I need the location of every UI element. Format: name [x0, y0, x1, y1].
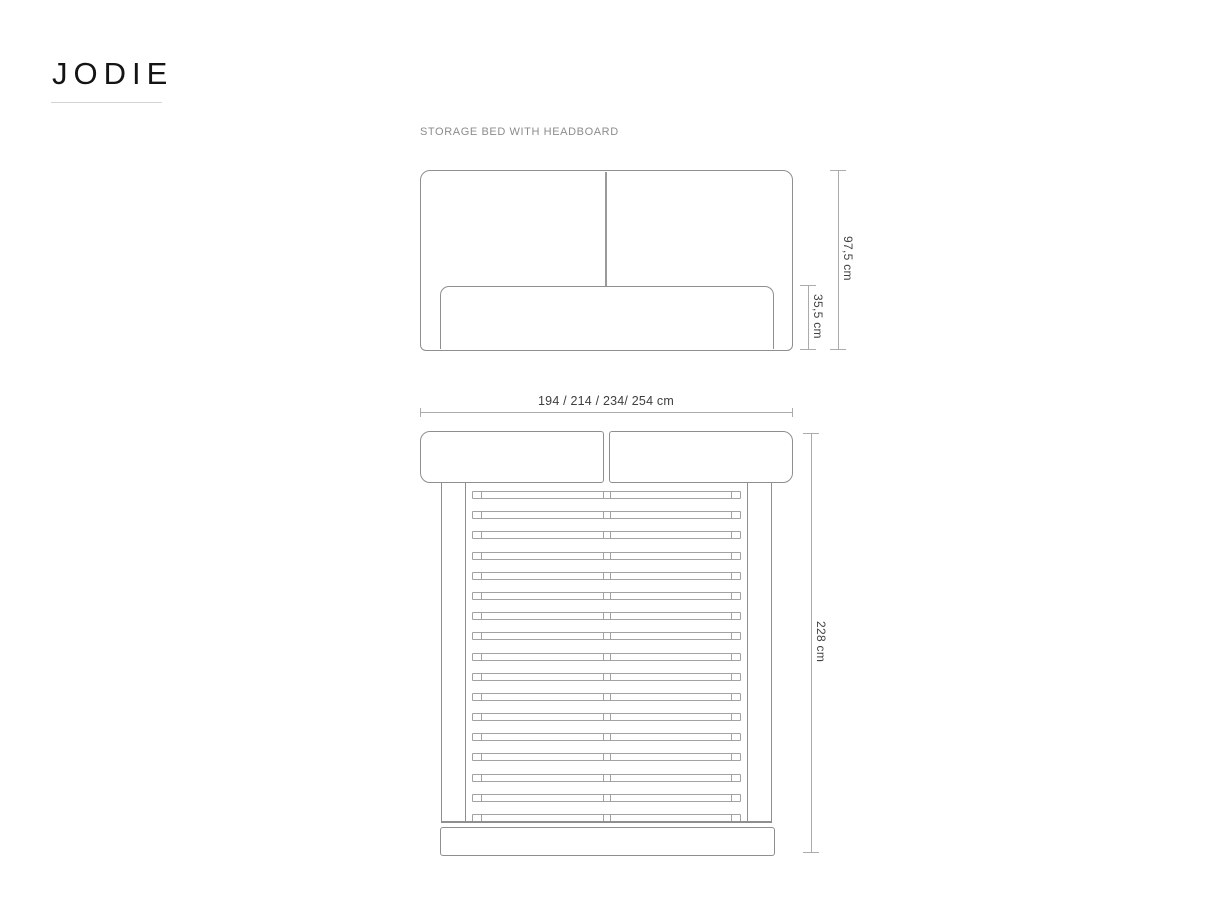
slat-end-cap	[603, 593, 604, 599]
slat-end-cap	[610, 714, 611, 720]
brand-logo: JODIE	[52, 56, 173, 92]
platform-bottom-edge	[441, 821, 772, 823]
bed-slat	[472, 673, 741, 681]
slat-end-cap	[481, 654, 482, 660]
bed-slat	[472, 774, 741, 782]
slat-end-cap	[731, 532, 732, 538]
bed-slat	[472, 753, 741, 761]
slat-end-cap	[481, 714, 482, 720]
slat-end-cap	[603, 734, 604, 740]
slat-end-cap	[610, 734, 611, 740]
slat-end-cap	[603, 654, 604, 660]
dim-line	[838, 171, 839, 350]
slat-end-cap	[481, 674, 482, 680]
slat-end-cap	[610, 654, 611, 660]
dim-tick-top	[803, 433, 819, 434]
slat-end-cap	[731, 512, 732, 518]
slat-end-cap	[731, 694, 732, 700]
slat-end-cap	[481, 593, 482, 599]
slat-end-cap	[603, 573, 604, 579]
dim-label-total-length: 228 cm	[814, 621, 828, 662]
slat-end-cap	[731, 573, 732, 579]
slat-end-cap	[481, 492, 482, 498]
slat-end-cap	[610, 553, 611, 559]
slat-end-cap	[610, 512, 611, 518]
bed-slat	[472, 491, 741, 499]
slat-end-cap	[610, 532, 611, 538]
slat-end-cap	[610, 775, 611, 781]
slat-end-cap	[481, 795, 482, 801]
bed-slat	[472, 511, 741, 519]
slat-end-cap	[610, 492, 611, 498]
slat-end-cap	[610, 795, 611, 801]
bed-slat	[472, 713, 741, 721]
slat-end-cap	[603, 775, 604, 781]
dim-tick-bottom	[800, 349, 816, 350]
bed-slat	[472, 632, 741, 640]
slat-end-cap	[731, 613, 732, 619]
product-subtitle: STORAGE BED WITH HEADBOARD	[420, 126, 619, 138]
slat-end-cap	[731, 553, 732, 559]
slat-end-cap	[610, 593, 611, 599]
slat-end-cap	[731, 775, 732, 781]
dim-line	[808, 286, 809, 350]
dim-label-width: 194 / 214 / 234/ 254 cm	[538, 394, 674, 408]
side-rail-right	[747, 483, 772, 822]
footboard-outline	[440, 827, 775, 856]
slat-end-cap	[731, 633, 732, 639]
slat-end-cap	[610, 613, 611, 619]
headboard-cushion-right	[609, 431, 793, 483]
bed-slat	[472, 794, 741, 802]
slat-end-cap	[603, 714, 604, 720]
dim-tick-right	[792, 408, 793, 417]
dim-tick-top	[800, 285, 816, 286]
slat-end-cap	[481, 734, 482, 740]
bed-slat	[472, 693, 741, 701]
slat-end-cap	[603, 674, 604, 680]
dim-tick-bottom	[803, 852, 819, 853]
slat-end-cap	[481, 532, 482, 538]
bed-slat	[472, 552, 741, 560]
slat-end-cap	[731, 734, 732, 740]
dim-tick-top	[830, 170, 846, 171]
dim-label-frame-height: 35,5 cm	[811, 294, 825, 339]
spec-sheet-page: JODIE STORAGE BED WITH HEADBOARD 97,5 cm…	[0, 0, 1214, 911]
slat-end-cap	[481, 613, 482, 619]
bed-slat	[472, 733, 741, 741]
slat-end-cap	[603, 633, 604, 639]
bed-slat	[472, 612, 741, 620]
dim-tick-bottom	[830, 349, 846, 350]
slat-end-cap	[610, 754, 611, 760]
slat-end-cap	[610, 694, 611, 700]
slat-end-cap	[610, 633, 611, 639]
slat-end-cap	[603, 754, 604, 760]
slat-end-cap	[731, 593, 732, 599]
slat-end-cap	[731, 492, 732, 498]
bed-frame-outline	[440, 286, 774, 349]
slat-end-cap	[603, 613, 604, 619]
slat-end-cap	[731, 754, 732, 760]
dim-label-total-height: 97,5 cm	[841, 236, 855, 281]
dim-line	[420, 412, 793, 413]
slat-end-cap	[481, 633, 482, 639]
slat-end-cap	[603, 694, 604, 700]
slat-end-cap	[731, 714, 732, 720]
dim-tick-left	[420, 408, 421, 417]
logo-underline	[51, 102, 162, 103]
slat-end-cap	[603, 512, 604, 518]
slat-area	[472, 491, 741, 822]
dim-line	[811, 433, 812, 853]
bed-slat	[472, 531, 741, 539]
slat-end-cap	[481, 694, 482, 700]
slat-end-cap	[610, 573, 611, 579]
headboard-seam-line	[605, 172, 607, 287]
slat-end-cap	[603, 795, 604, 801]
slat-end-cap	[603, 553, 604, 559]
slat-end-cap	[481, 512, 482, 518]
headboard-cushion-left	[420, 431, 604, 483]
slat-end-cap	[731, 654, 732, 660]
bed-slat	[472, 572, 741, 580]
slat-end-cap	[731, 674, 732, 680]
slat-end-cap	[481, 573, 482, 579]
slat-end-cap	[603, 532, 604, 538]
slat-end-cap	[481, 553, 482, 559]
slat-end-cap	[610, 674, 611, 680]
slat-end-cap	[481, 754, 482, 760]
bed-slat	[472, 653, 741, 661]
side-rail-left	[441, 483, 466, 822]
slat-end-cap	[603, 492, 604, 498]
slat-end-cap	[481, 775, 482, 781]
slat-end-cap	[731, 795, 732, 801]
bed-slat	[472, 592, 741, 600]
